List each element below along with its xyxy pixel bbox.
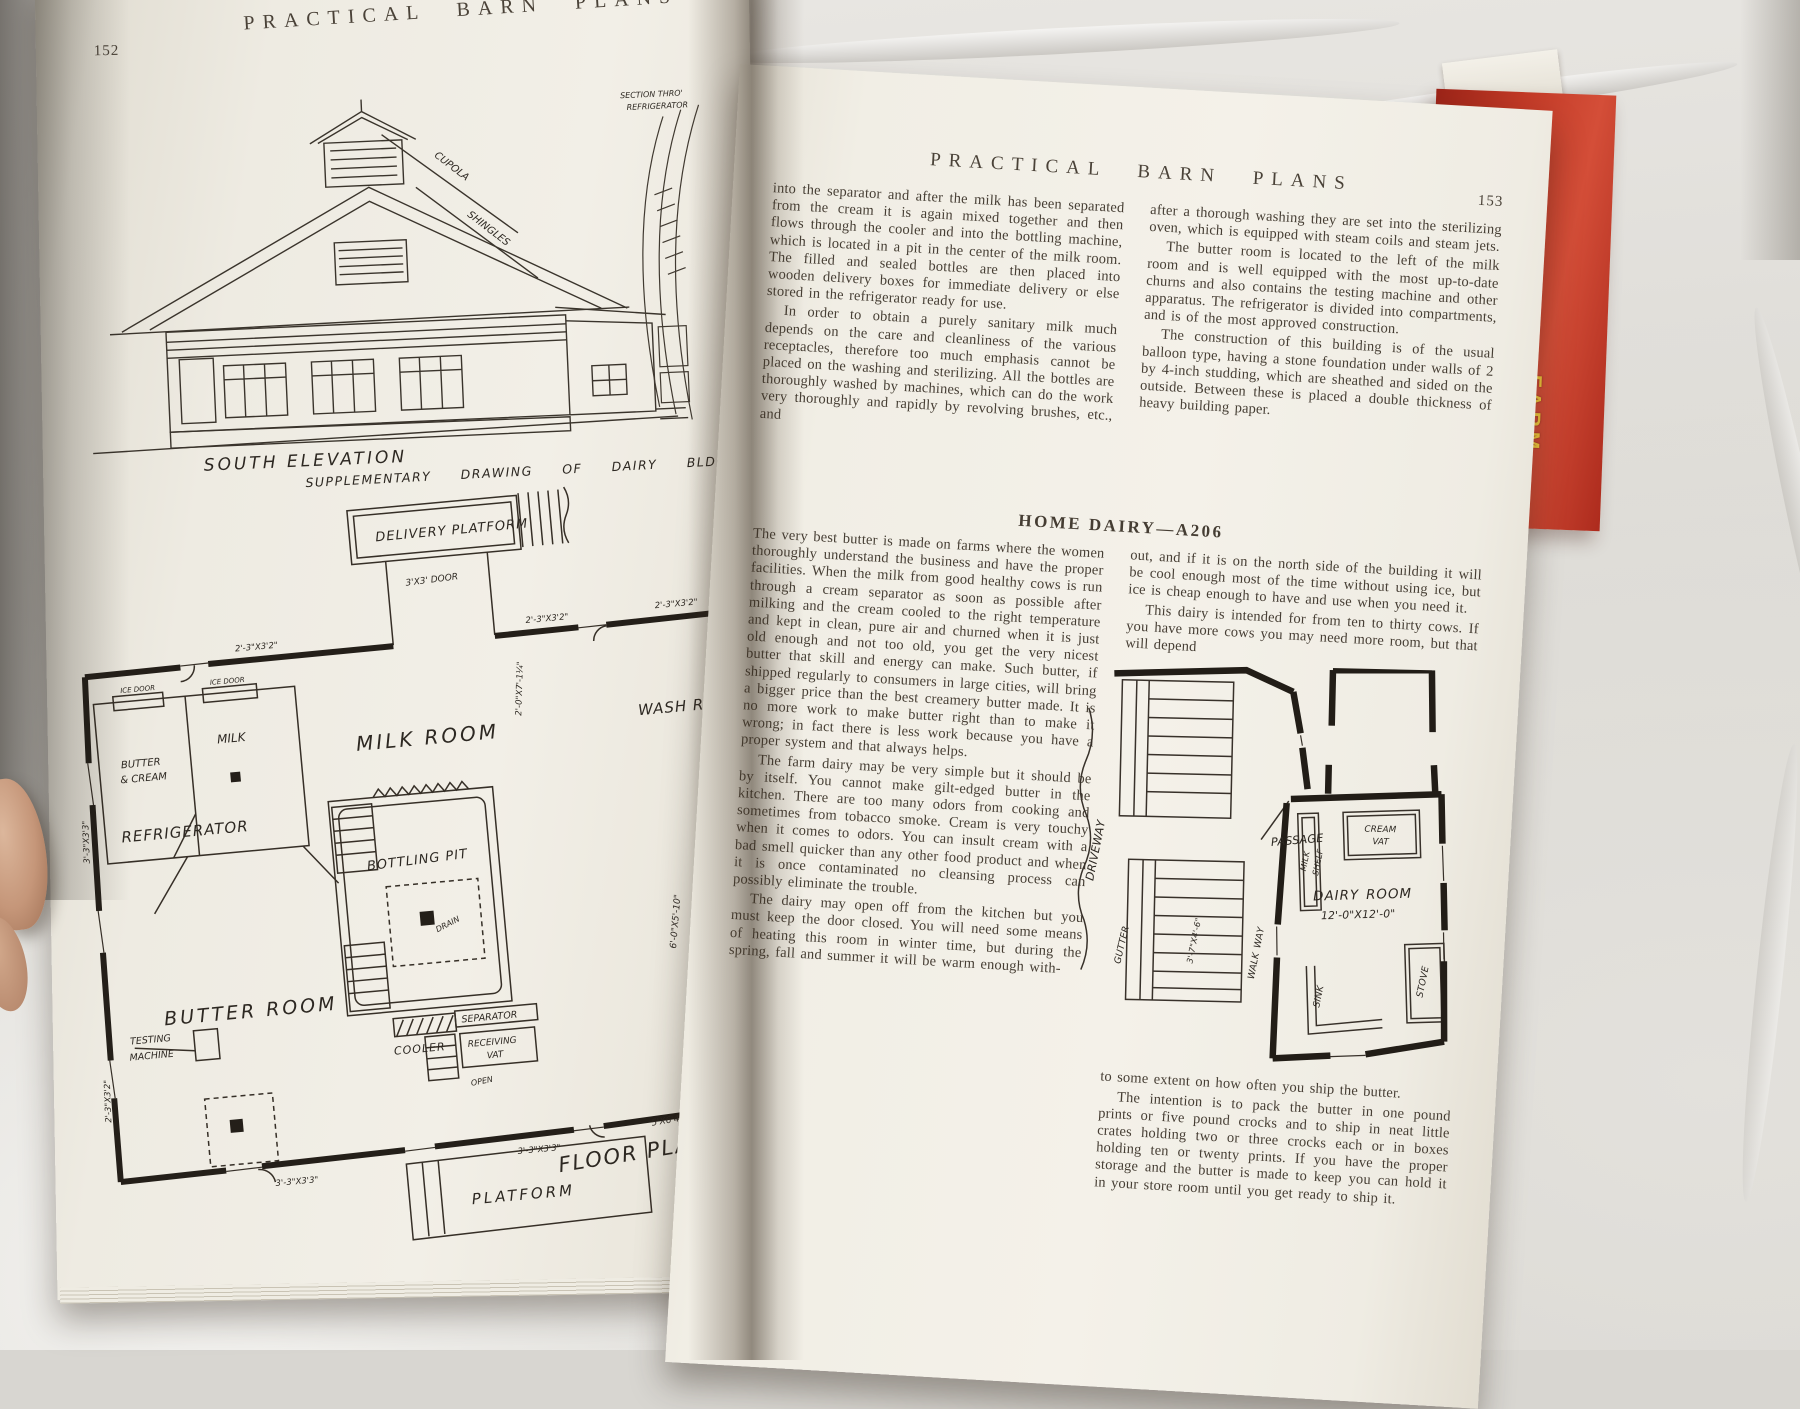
wall-dim: 2'-3"X3'2" [235, 641, 279, 655]
paragraph: The construction of this building is of … [1139, 326, 1495, 432]
churn-square [230, 1119, 244, 1133]
text-row-bottom: The very best butter is made on farms wh… [716, 526, 1482, 1214]
home-dairy-floor-plan: DRIVEWAY PASSAGE GUTTER 3'-7"X4'-6" WALK… [1064, 662, 1465, 1075]
dairy-room-label: DAIRY ROOM [1313, 887, 1412, 905]
open-label: OPEN [470, 1075, 494, 1088]
butter-room-label: BUTTER ROOM [163, 993, 338, 1031]
elevation-lines [78, 86, 688, 454]
wall-dim: 3'-3"X3'3" [517, 1143, 561, 1157]
milk-compartment-label: MILK [216, 730, 247, 747]
dairy-plan-thin [1075, 679, 1454, 1038]
separator-label: SEPARATOR [461, 1009, 518, 1025]
driveway-label: DRIVEWAY [1082, 818, 1108, 882]
corner-shadow [1740, 0, 1800, 260]
section-label: REFRIGERATOR [626, 100, 688, 112]
wall-dim: 3'-3"X3'3" [275, 1175, 319, 1189]
column-1-top: into the separator and after the milk ha… [759, 180, 1125, 445]
plan-dot [230, 772, 241, 783]
right-page-number: 153 [1477, 193, 1503, 211]
roof-note: CUPOLA [432, 150, 471, 184]
left-page: 152 PRACTICAL BARN PLANS [35, 0, 772, 1300]
paragraph: The very best butter is made on farms wh… [741, 526, 1105, 770]
paragraph: into the separator and after the milk ha… [766, 180, 1124, 320]
testing-machine-label: MACHINE [129, 1049, 174, 1064]
section-fragment [636, 105, 712, 421]
left-running-head: PRACTICAL BARN PLANS [243, 0, 679, 36]
testing-machine-label: TESTING [130, 1033, 172, 1048]
drain-label: DRAIN [434, 914, 461, 934]
paragraph: In order to obtain a purely sanitary mil… [759, 302, 1117, 442]
right-page: PRACTICAL BARN PLANS 153 into the separa… [665, 64, 1552, 1409]
platform-label: PLATFORM [471, 1181, 576, 1208]
door-dim: 3'X3' DOOR [405, 572, 459, 589]
vertical-dim: 2'-3"X3'2" [103, 1079, 115, 1122]
south-elevation-drawing: SECTION THRO' REFRIGERATOR CUPOLA SHINGL… [60, 72, 744, 485]
column-2-bottom: out, and if it is on the north side of t… [1094, 547, 1483, 1213]
paragraph: The intention is to pack the butter in o… [1094, 1088, 1451, 1211]
left-edge-shadow [0, 0, 130, 900]
milk-shelf-label: MILK [1298, 850, 1312, 872]
gutter-label: GUTTER [1112, 925, 1132, 965]
refrigerator-label: REFRIGERATOR [121, 817, 250, 846]
bottling-pit-label: BOTTLING PIT [366, 847, 469, 875]
receiving-vat-label: RECEIVING [467, 1036, 517, 1050]
receiving-vat-label: VAT [486, 1050, 505, 1062]
column-1-bottom: The very best butter is made on farms wh… [716, 526, 1105, 1192]
walkway-label: WALK WAY [1246, 925, 1267, 980]
cream-vat-label: VAT [1372, 837, 1389, 847]
vertical-dim: 6'-0"X5'-10" [669, 894, 684, 949]
milk-room-label: MILK ROOM [355, 719, 500, 756]
stall-dim: 3'-7"X4'-6" [1184, 917, 1203, 964]
drain-square [420, 911, 435, 926]
passage-label: PASSAGE [1270, 831, 1324, 849]
milk-shelf-label: SHELF [1310, 848, 1325, 876]
text-row-top: into the separator and after the milk ha… [759, 180, 1502, 466]
stove-label: STOVE [1415, 965, 1432, 998]
column-2-top: after a thorough washing they are set in… [1137, 202, 1503, 467]
wall-dim: 2'-3"X3'2" [654, 597, 698, 611]
section-label: SECTION THRO' [620, 89, 683, 101]
dairy-plan-walls [1106, 663, 1453, 1062]
sink-label: SINK [1311, 984, 1326, 1009]
cream-vat-label: CREAM [1364, 825, 1397, 836]
vertical-dim: 2'-0"X7'-1¼" [514, 661, 526, 716]
dairy-room-dim: 12'-0"X12'-0" [1321, 907, 1396, 922]
cooler-label: COOLER [393, 1040, 446, 1058]
delivery-platform-label: DELIVERY PLATFORM [375, 516, 529, 545]
wall-dim: 2'-3"X3'2" [525, 612, 569, 626]
paragraph: The farm dairy may be very simple but it… [733, 751, 1092, 909]
